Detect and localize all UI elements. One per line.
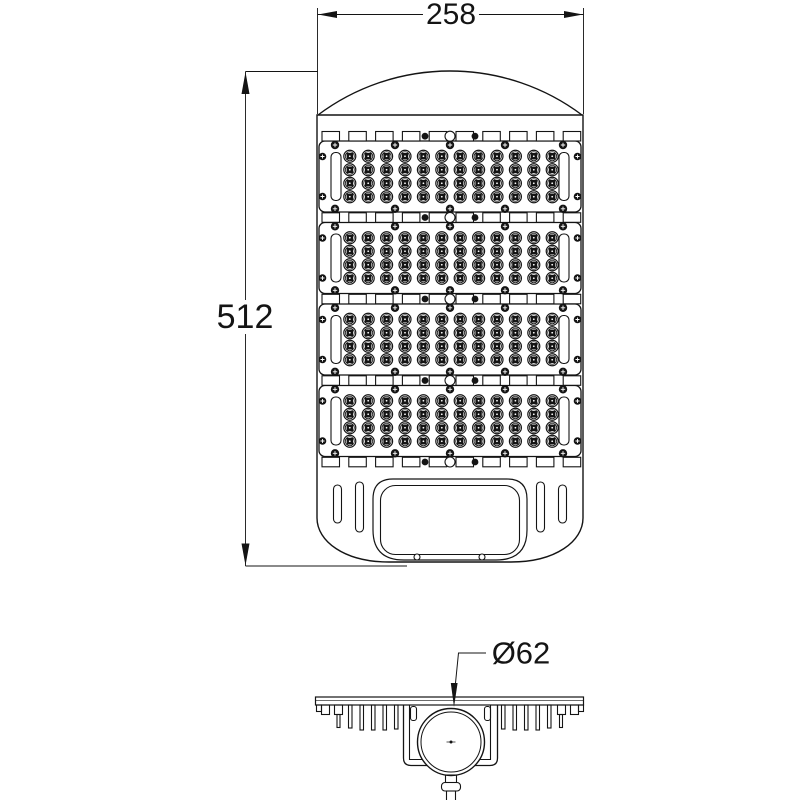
side-view — [316, 697, 584, 800]
led-module-2 — [319, 223, 582, 294]
mounting-strip-4 — [322, 368, 581, 394]
mounting-strip-1 — [322, 131, 581, 149]
led-grid — [344, 313, 558, 366]
street-light-technical-drawing — [0, 0, 800, 800]
cable-gland — [442, 775, 461, 800]
driver-compartment — [334, 479, 567, 560]
pole-diameter-leader — [451, 653, 486, 707]
dimension-height-label: 512 — [214, 300, 277, 334]
top-view — [317, 71, 583, 562]
led-grid — [344, 232, 558, 285]
led-grid — [344, 395, 558, 448]
led-module-3 — [319, 304, 582, 375]
pole-socket-circle — [418, 709, 485, 776]
mounting-strip-5 — [322, 449, 581, 467]
dimension-width-label: 258 — [423, 0, 479, 30]
dimension-pole-diameter-label: Ø62 — [489, 638, 554, 669]
mounting-strip-2 — [322, 205, 581, 231]
technical-drawing-page: 258 512 Ø62 — [0, 0, 800, 800]
led-grid — [344, 150, 558, 203]
led-module-4 — [319, 386, 582, 457]
led-module-1 — [319, 141, 582, 212]
drawing-root — [242, 8, 584, 800]
mounting-strip-3 — [322, 286, 581, 312]
